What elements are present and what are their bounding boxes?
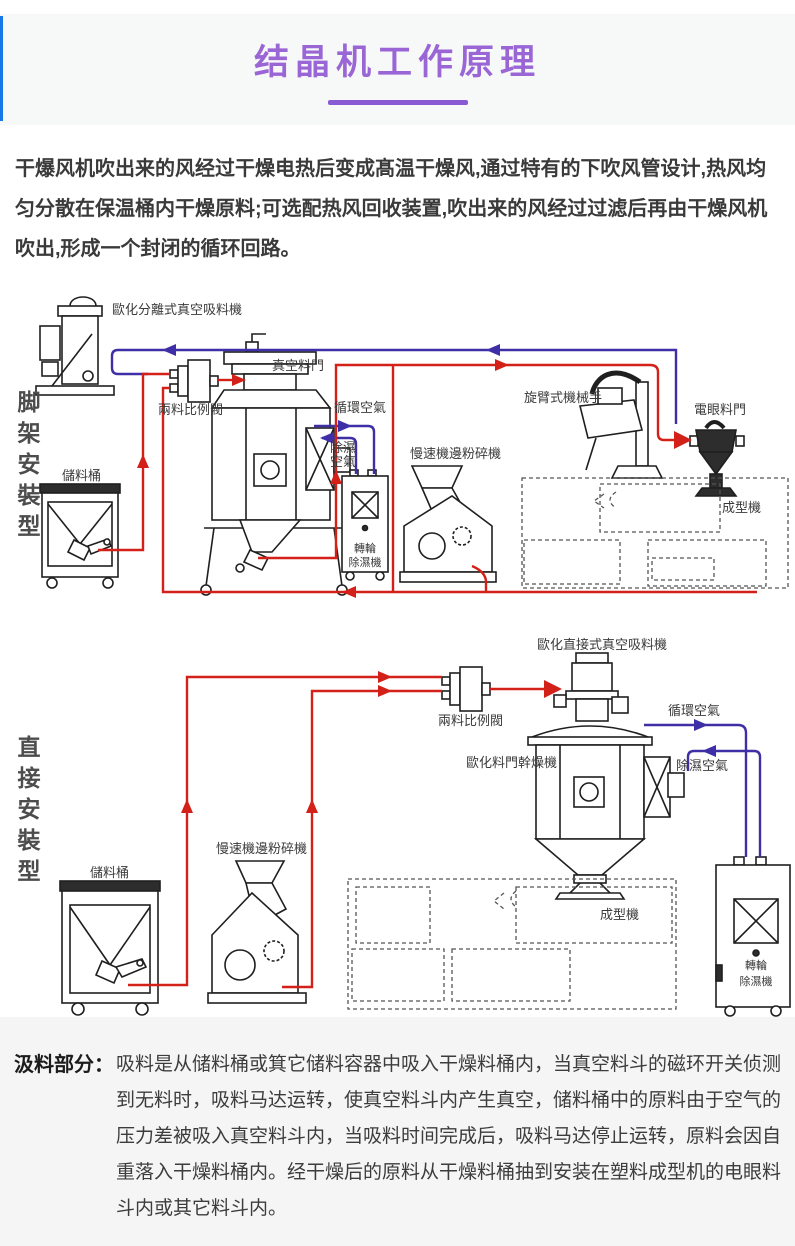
label-molding-machine: 成型機 — [722, 500, 761, 515]
page-title: 结晶机工作原理 — [0, 14, 795, 85]
diagram-stand-type: 歐化分離式真空吸料機 真空料門 兩料比例閥 循環空氣 除濕 空氣 儲料桶 轉輪 … — [0, 290, 795, 635]
label-dryer: 歐化料門幹燥機 — [466, 755, 557, 770]
left-accent-bar — [0, 16, 3, 121]
storage-bin-figure — [60, 881, 160, 1015]
granulator-figure — [208, 861, 306, 1003]
dryer-hopper-figure — [201, 334, 350, 595]
label-robot-arm: 旋臂式機械手 — [524, 390, 602, 405]
storage-bin-figure — [40, 484, 120, 588]
label-proportional-valve: 兩料比例閥 — [158, 402, 223, 417]
label-molding-machine: 成型機 — [600, 907, 639, 922]
proportional-valve-figure — [442, 667, 490, 711]
proportional-valve-figure — [170, 360, 218, 402]
label-dehumidified-air-line2: 空氣 — [330, 454, 356, 469]
label-storage-bin: 儲料桶 — [90, 865, 129, 880]
top-strip — [0, 0, 795, 14]
photo-eye-hopper-figure — [690, 422, 744, 496]
title-section: 结晶机工作原理 — [0, 14, 795, 125]
suction-heading: 汲料部分： — [14, 1047, 116, 1227]
label-dehumidifier-line1: 轉輪 — [354, 541, 376, 555]
molding-machine-figure — [522, 478, 788, 588]
label-circulating-air: 循環空氣 — [334, 400, 386, 415]
label-vacuum-loader: 歐化分離式真空吸料機 — [112, 302, 242, 317]
label-dehumidified-air-line1: 除濕 — [330, 440, 356, 455]
label-granulator: 慢速機邊粉碎機 — [216, 841, 307, 856]
label-vacuum-loader: 歐化直接式真空吸料機 — [537, 637, 667, 652]
granulator-figure — [400, 466, 496, 582]
diagram2-side-label: 直接安裝型 — [10, 735, 44, 890]
diagram1-canvas: 歐化分離式真空吸料機 真空料門 兩料比例閥 循環空氣 除濕 空氣 儲料桶 轉輪 … — [0, 290, 795, 635]
vacuum-loader-figure — [554, 653, 628, 721]
diagram-direct-type: 歐化直接式真空吸料機 兩料比例閥 歐化料門幹燥機 循環空氣 除濕空氣 儲料桶 慢… — [0, 635, 795, 1017]
label-photo-eye-hopper: 電眼料門 — [694, 402, 746, 417]
label-dehumidifier-line1: 轉輪 — [745, 958, 767, 972]
wheel-dehumidifier-figure — [716, 857, 790, 1016]
molding-machine-figure — [348, 879, 676, 1009]
diagram1-side-label: 脚架安裝型 — [10, 390, 44, 545]
label-vacuum-hopper: 真空料門 — [272, 358, 324, 373]
label-storage-bin: 儲料桶 — [62, 468, 101, 483]
dryer-figure — [528, 726, 684, 899]
intro-section: 干爆风机吹出来的风经过干燥电热后变成髙温干燥风,通过特有的下吹风管设计,热风均匀… — [0, 125, 795, 290]
title-underline — [328, 100, 468, 105]
label-granulator: 慢速機邊粉碎機 — [410, 446, 501, 461]
robot-arm-figure — [580, 373, 662, 478]
intro-paragraph: 干爆风机吹出来的风经过干燥电热后变成髙温干燥风,通过特有的下吹风管设计,热风均匀… — [15, 149, 780, 269]
vacuum-loader-figure — [36, 297, 114, 395]
label-dehumidified-air: 除濕空氣 — [676, 758, 728, 773]
label-proportional-valve: 兩料比例閥 — [438, 713, 503, 728]
label-dehumidifier-line2: 除濕機 — [349, 555, 382, 569]
suction-section: 汲料部分： 吸料是从储料桶或箕它储料容器中吸入干燥料桶内，当真空料斗的磁环开关侦… — [0, 1017, 795, 1246]
label-circulating-air: 循環空氣 — [668, 703, 720, 718]
label-dehumidifier-line2: 除濕機 — [740, 974, 773, 988]
diagram2-canvas: 歐化直接式真空吸料機 兩料比例閥 歐化料門幹燥機 循環空氣 除濕空氣 儲料桶 慢… — [0, 635, 795, 1017]
suction-body: 吸料是从储料桶或箕它储料容器中吸入干燥料桶内，当真空料斗的磁环开关侦测到无料时，… — [116, 1047, 781, 1227]
